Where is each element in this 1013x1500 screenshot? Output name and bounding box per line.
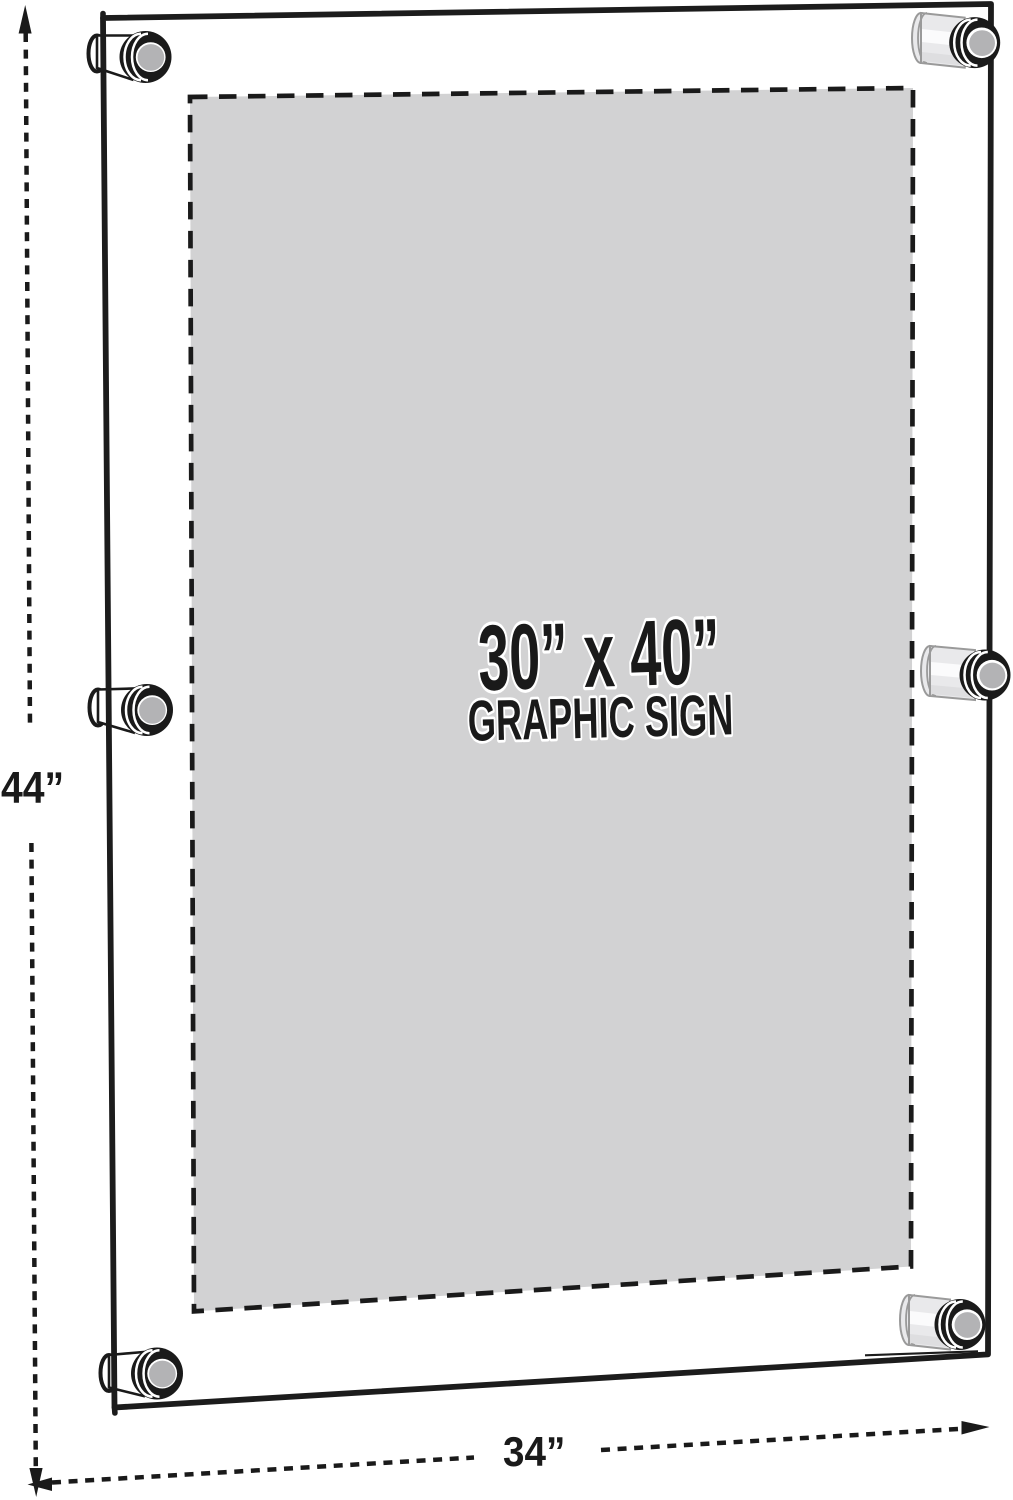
- svg-text:34”: 34”: [503, 1427, 565, 1475]
- svg-text:44”: 44”: [1, 763, 64, 813]
- svg-text:GRAPHIC SIGN: GRAPHIC SIGN: [467, 684, 734, 754]
